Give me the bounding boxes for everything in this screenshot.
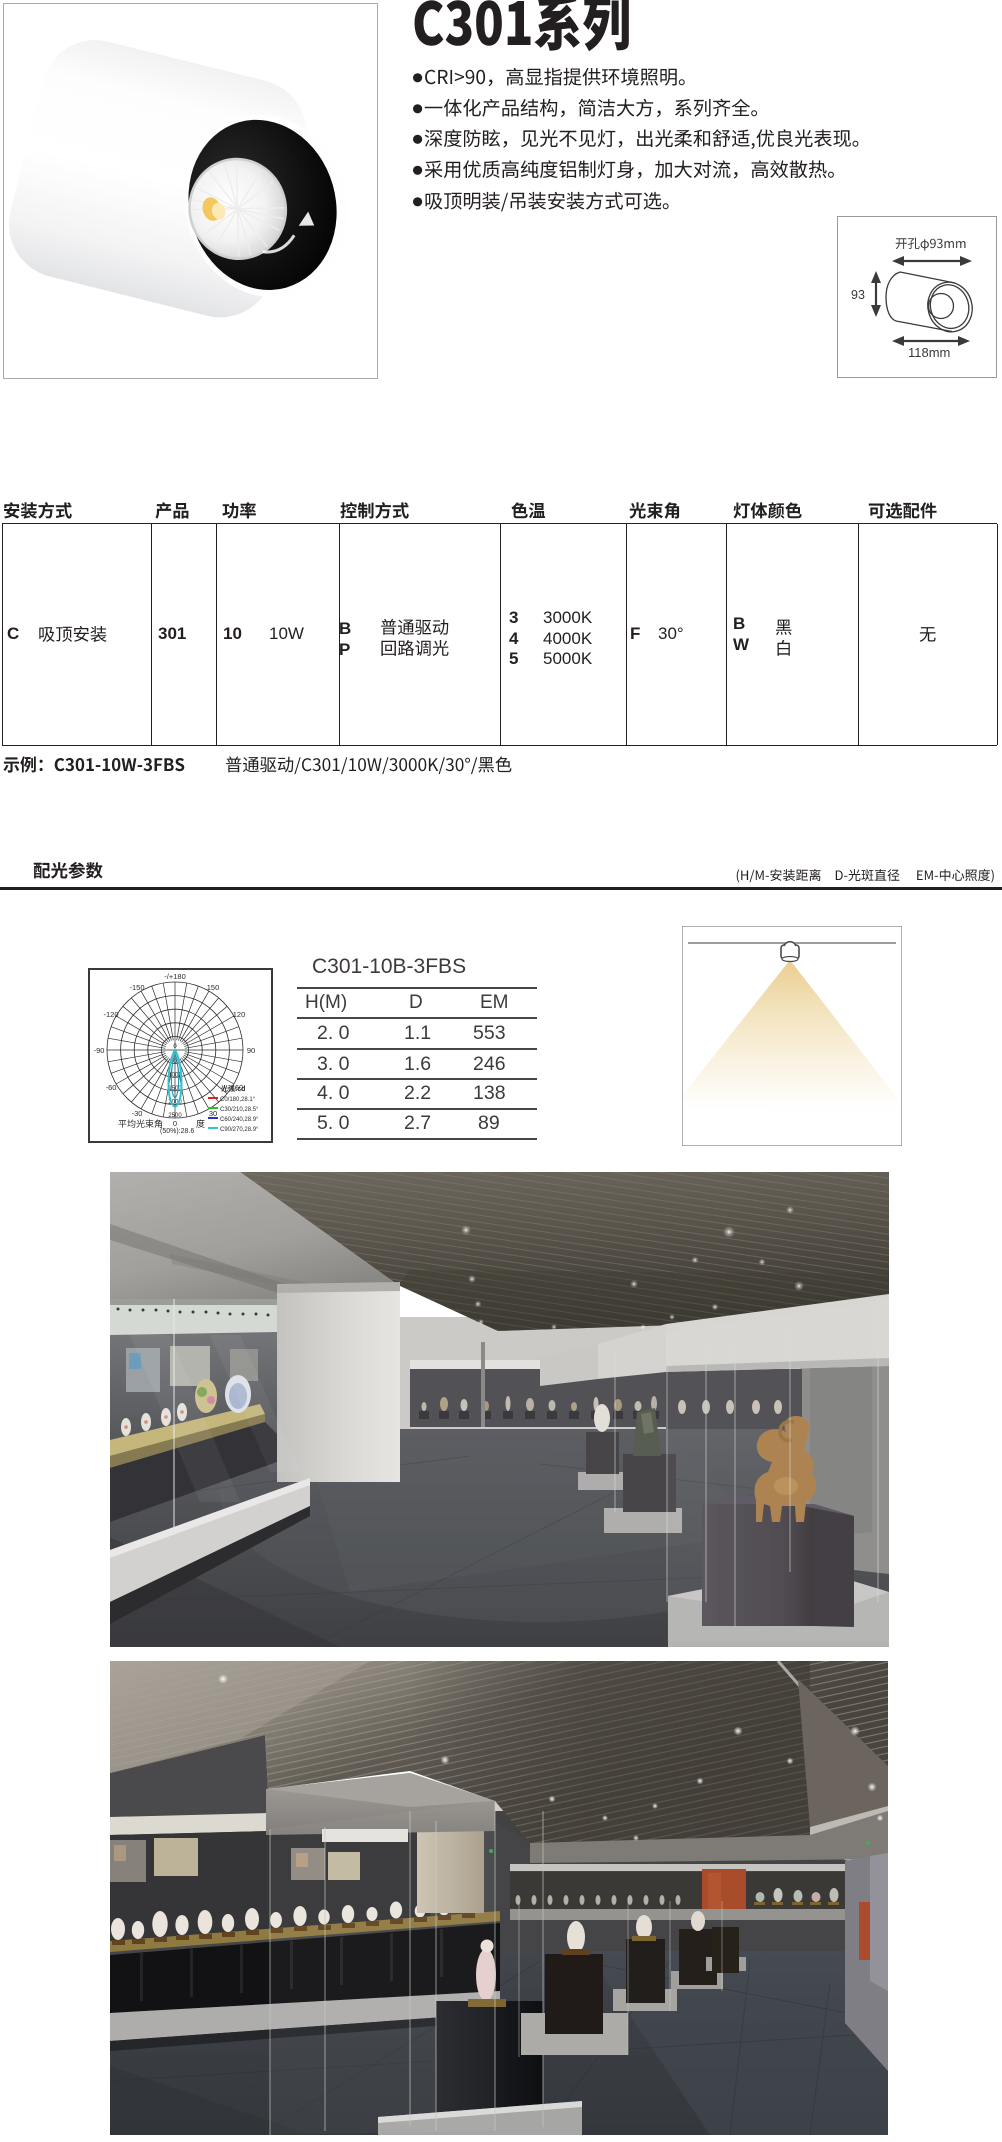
svg-text:-120: -120 xyxy=(103,1010,118,1019)
svg-text:(50%):28.6: (50%):28.6 xyxy=(160,1128,194,1135)
svg-text:C0/180,28.1°: C0/180,28.1° xyxy=(220,1097,256,1103)
svg-text:120: 120 xyxy=(233,1010,246,1019)
svg-text:0: 0 xyxy=(173,1119,177,1128)
svg-text:C90/270,28.9°: C90/270,28.9° xyxy=(220,1127,259,1133)
svg-text:30: 30 xyxy=(209,1109,217,1118)
svg-text:150: 150 xyxy=(207,983,220,992)
svg-text:2500: 2500 xyxy=(168,1113,182,1119)
svg-text:-90: -90 xyxy=(94,1046,105,1055)
svg-text:-150: -150 xyxy=(129,983,144,992)
svg-text:-/+180: -/+180 xyxy=(164,972,185,981)
svg-text:90: 90 xyxy=(247,1046,255,1055)
svg-text:1500: 1500 xyxy=(168,1086,182,1092)
svg-text:C60/240,28.9°: C60/240,28.9° xyxy=(220,1117,259,1123)
svg-text:-30: -30 xyxy=(132,1109,143,1118)
svg-text:C30/210,28.5°: C30/210,28.5° xyxy=(220,1107,259,1113)
svg-text:-60: -60 xyxy=(106,1083,117,1092)
